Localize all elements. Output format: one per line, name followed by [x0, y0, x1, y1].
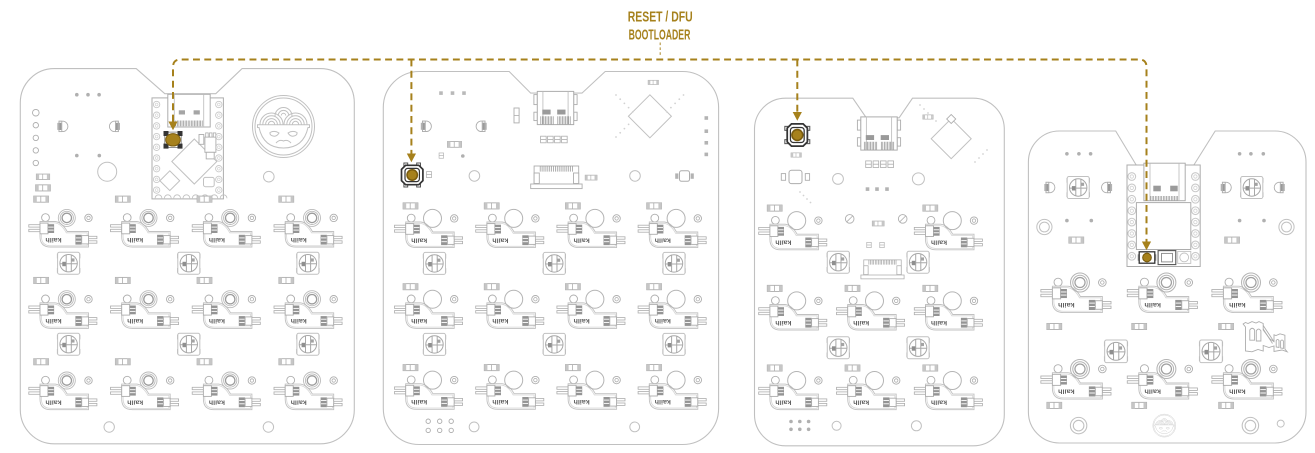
svg-text:RESET / DFU: RESET / DFU [628, 9, 693, 26]
svg-text:BOOTLOADER: BOOTLOADER [629, 27, 691, 44]
